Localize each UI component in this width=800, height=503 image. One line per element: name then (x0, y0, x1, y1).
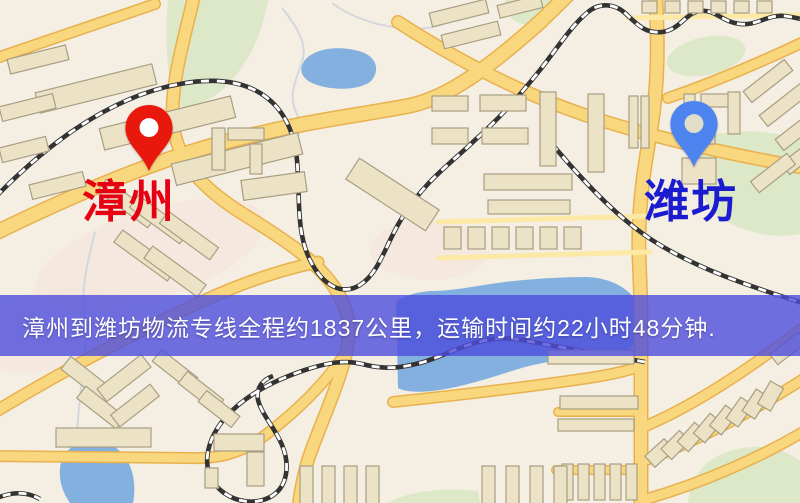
map-canvas (0, 0, 800, 503)
pin-icon (120, 104, 178, 172)
origin-city-label: 漳州 (82, 179, 176, 224)
origin-pin[interactable] (120, 104, 178, 172)
destination-pin-body (670, 101, 717, 167)
map-screenshot: 漳州 潍坊 漳州到潍坊物流专线全程约1837公里，运输时间约22小时48分钟. (0, 0, 800, 503)
route-info-banner: 漳州到潍坊物流专线全程约1837公里，运输时间约22小时48分钟. (0, 295, 800, 356)
origin-pin-hole (140, 118, 159, 137)
destination-pin-hole (685, 114, 704, 133)
pin-icon (665, 100, 723, 168)
destination-pin[interactable] (665, 100, 723, 168)
route-info-text: 漳州到潍坊物流专线全程约1837公里，运输时间约22小时48分钟. (0, 309, 716, 343)
destination-city-label: 潍坊 (644, 179, 738, 224)
origin-pin-body (125, 105, 172, 171)
